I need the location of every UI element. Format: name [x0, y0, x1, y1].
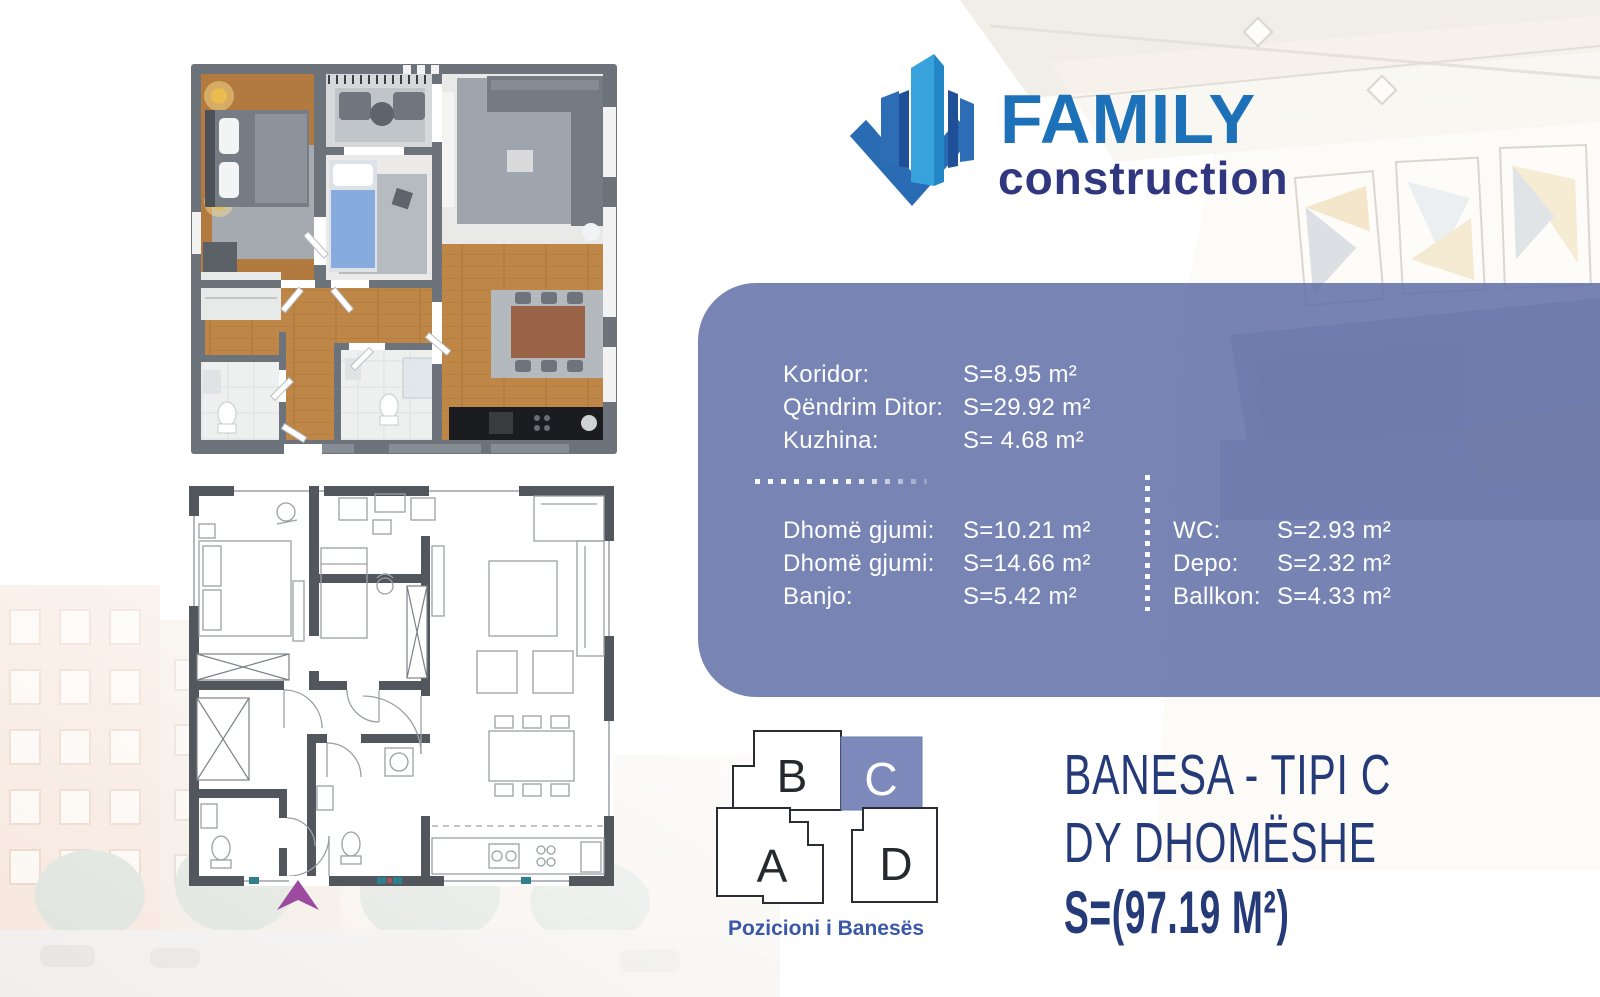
title-line-rooms: DY DHOMËSHE: [1064, 810, 1377, 876]
dining-area-3d: [491, 290, 603, 378]
area-label: Banjo:: [783, 583, 963, 611]
area-label: Dhomë gjumi:: [783, 550, 963, 578]
area-value: S=29.92 m²: [963, 394, 1091, 422]
position-caption: Pozicioni i Banesës: [728, 917, 924, 940]
block-d-label: D: [879, 838, 912, 890]
area-label: Koridor:: [783, 361, 963, 389]
area-label: Ballkon:: [1173, 583, 1277, 611]
area-label: Dhomë gjumi:: [783, 517, 963, 545]
floorplan-2d-drawing: [189, 486, 614, 886]
brand-name: FAMILY: [1000, 84, 1256, 154]
block-c-label: C: [864, 753, 897, 805]
entry-lobby-3d: [326, 74, 432, 147]
area-value: S=10.21 m²: [963, 517, 1091, 545]
entrance-arrow-icon: [276, 879, 320, 911]
area-group-rooms: Dhomë gjumi: S=10.21 m² Dhomë gjumi: S=1…: [783, 517, 1091, 616]
area-row: Dhomë gjumi: S=10.21 m²: [783, 517, 1091, 550]
area-row: Koridor: S=8.95 m²: [783, 361, 1091, 394]
area-label: WC:: [1173, 517, 1277, 545]
area-row: Ballkon: S=4.33 m²: [1173, 583, 1391, 616]
living-room-3d: [442, 74, 603, 244]
bathroom-left-3d: [201, 362, 279, 440]
area-group-main: Koridor: S=8.95 m² Qëndrim Ditor: S=29.9…: [783, 361, 1091, 460]
area-row: Depo: S=2.32 m²: [1173, 550, 1391, 583]
area-value: S=2.93 m²: [1277, 517, 1391, 545]
brand-tagline: construction: [998, 152, 1289, 204]
kitchen-3d: [449, 407, 603, 440]
brochure-page: FAMILY construction Koridor: S=8.95 m² Q…: [0, 0, 1600, 997]
apartment-title-block: BANESA - TIPI C DY DHOMËSHE S=(97.19 M²): [1064, 742, 1518, 946]
area-row: Kuzhina: S= 4.68 m²: [783, 427, 1091, 460]
area-value: S=14.66 m²: [963, 550, 1091, 578]
floorplan-3d-render: [189, 62, 619, 456]
area-value: S=8.95 m²: [963, 361, 1077, 389]
area-row: WC: S=2.93 m²: [1173, 517, 1391, 550]
dotted-divider-vertical: [1145, 475, 1150, 611]
title-line-area: S=(97.19 M²): [1064, 878, 1290, 947]
area-label: Depo:: [1173, 550, 1277, 578]
block-a-label: A: [757, 840, 788, 892]
area-row: Banjo: S=5.42 m²: [783, 583, 1091, 616]
block-b-label: B: [777, 750, 808, 802]
area-value: S= 4.68 m²: [963, 427, 1084, 455]
dotted-divider-horizontal: [755, 479, 927, 484]
area-value: S=2.32 m²: [1277, 550, 1391, 578]
area-row: Dhomë gjumi: S=14.66 m²: [783, 550, 1091, 583]
child-bedroom-3d: [326, 155, 432, 280]
area-label: Qëndrim Ditor:: [783, 394, 963, 422]
area-row: Qëndrim Ditor: S=29.92 m²: [783, 394, 1091, 427]
apartment-position-diagram: B C A D Pozicioni i Banesës: [700, 700, 950, 950]
area-value: S=4.33 m²: [1277, 583, 1391, 611]
area-label: Kuzhina:: [783, 427, 963, 455]
family-construction-logo-icon: [836, 46, 988, 230]
area-group-aux: WC: S=2.93 m² Depo: S=2.32 m² Ballkon: S…: [1173, 517, 1391, 616]
master-bedroom-3d: [201, 74, 314, 280]
storage-3d: [201, 272, 281, 320]
area-value: S=5.42 m²: [963, 583, 1077, 611]
title-line-type: BANESA - TIPI C: [1064, 742, 1391, 808]
area-info-panel: Koridor: S=8.95 m² Qëndrim Ditor: S=29.9…: [698, 283, 1600, 697]
